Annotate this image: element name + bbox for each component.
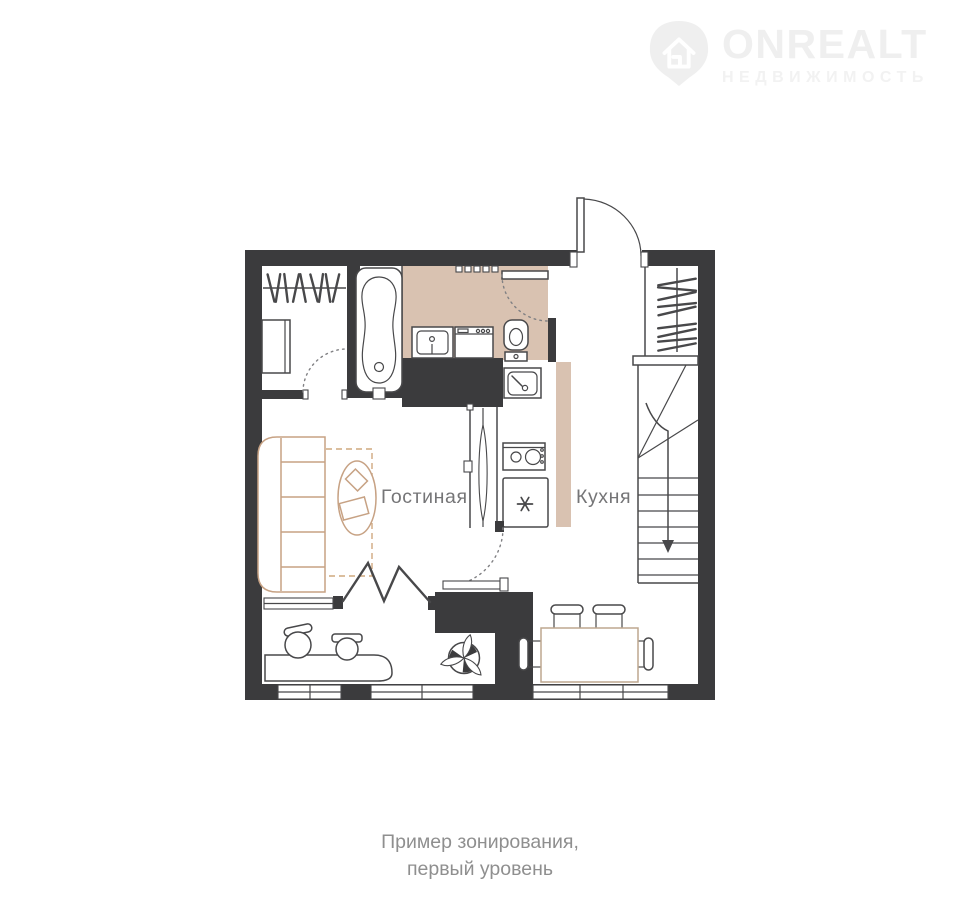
dining-chair-right — [638, 638, 653, 670]
fridge — [503, 478, 548, 527]
kitchen-sink — [504, 368, 541, 398]
logo-tagline: НЕДВИЖИМОСТЬ — [722, 69, 929, 87]
stairs — [633, 356, 698, 583]
floor-plan-stage: Гостиная Кухня — [0, 0, 960, 910]
toilet — [504, 320, 528, 361]
entrance-door — [570, 198, 648, 267]
door-handle — [464, 461, 472, 472]
living-room-label: Гостиная — [381, 486, 468, 508]
sofa — [258, 437, 325, 592]
caption-line-2: первый уровень — [0, 856, 960, 883]
entrance-door-leaf — [577, 198, 584, 252]
wardrobe-door-swing — [303, 349, 347, 399]
living-room: Гостиная — [258, 437, 468, 602]
towel-radiator — [456, 266, 498, 272]
clothes-hangers — [268, 274, 340, 302]
hall-closet — [658, 268, 696, 352]
bathtub — [356, 268, 402, 399]
bathtub-tap — [373, 388, 385, 399]
pocket-door-panel — [443, 578, 508, 591]
kitchen-floor-strip — [556, 362, 571, 527]
logo-brand: ONREALT — [722, 22, 929, 66]
folding-door — [343, 563, 430, 602]
logo-texts: ONREALT НЕДВИЖИМОСТЬ — [722, 22, 929, 87]
balcony-partition-window — [264, 598, 333, 609]
dining-table — [541, 628, 638, 682]
washing-machine — [455, 327, 493, 358]
kitchen-label: Кухня — [576, 486, 631, 508]
coffee-table — [338, 461, 376, 535]
plant — [440, 634, 484, 678]
wardrobe-cabinet — [262, 320, 290, 373]
caption: Пример зонирования, первый уровень — [0, 829, 960, 883]
stove — [503, 443, 545, 470]
page: { "logo": { "icon": "map-pin-house-icon"… — [0, 0, 960, 910]
balcony-window-left — [278, 685, 341, 699]
dining-chair-top-2 — [593, 605, 625, 628]
stairs-landing-edge — [633, 356, 698, 365]
vanity-sink — [412, 327, 453, 358]
dining-window — [533, 685, 668, 699]
balcony-window-right — [371, 685, 473, 699]
balcony-bench — [265, 655, 392, 681]
wardrobe — [262, 274, 347, 399]
logo: ONREALT НЕДВИЖИМОСТЬ — [646, 18, 929, 90]
dining-set — [519, 605, 653, 682]
floor-plan-svg: Гостиная Кухня — [0, 0, 960, 910]
caption-line-1: Пример зонирования, — [0, 829, 960, 856]
dining-chair-top-1 — [551, 605, 583, 628]
balcony — [265, 623, 392, 681]
map-pin-house-icon — [646, 18, 712, 90]
balcony-chair-round — [283, 623, 312, 658]
